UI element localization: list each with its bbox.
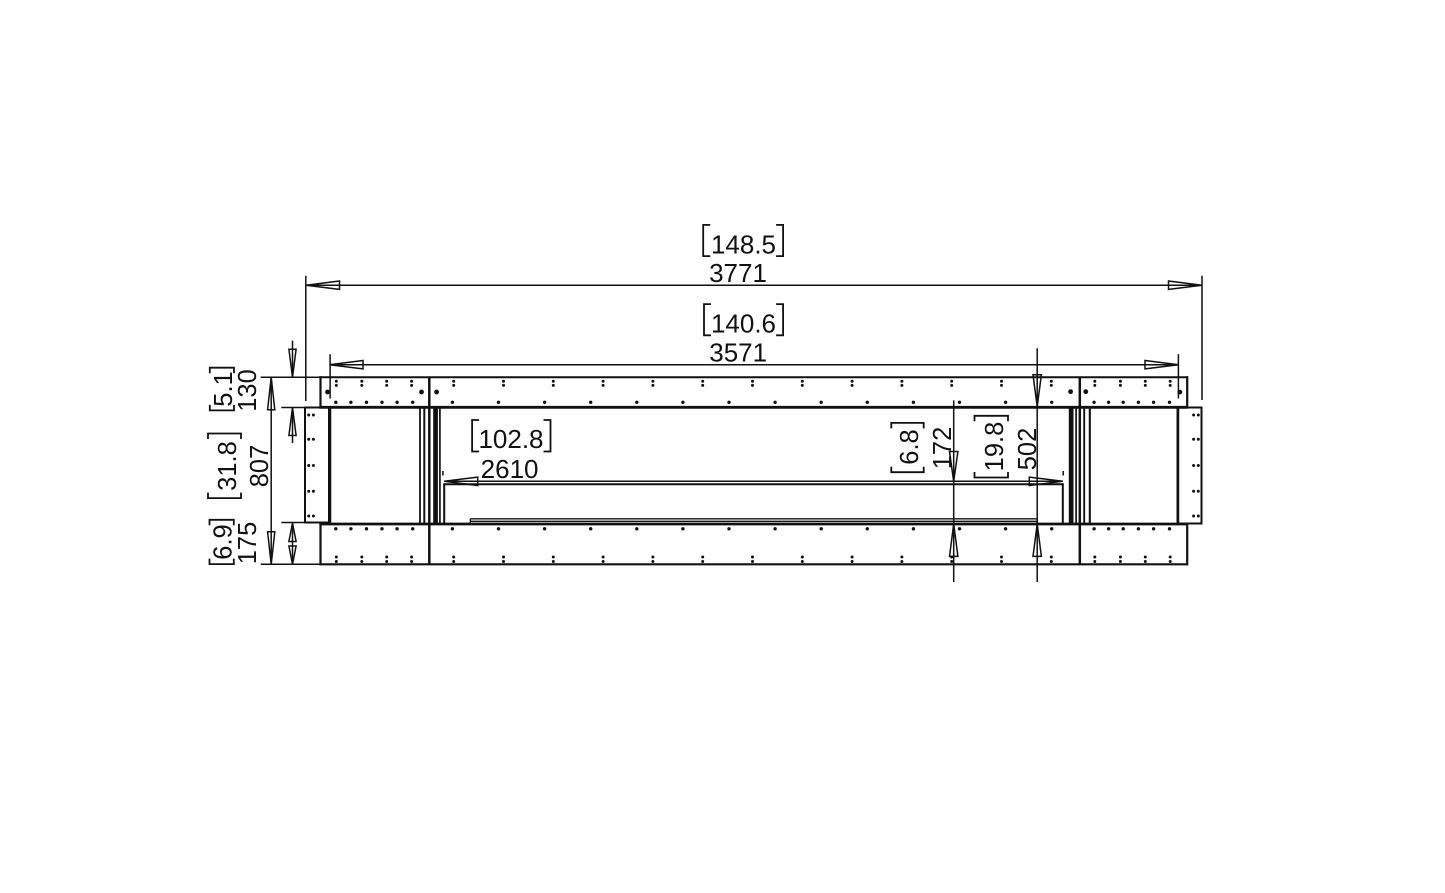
- svg-text:807: 807: [246, 445, 274, 488]
- svg-text:31.8: 31.8: [214, 441, 242, 491]
- svg-text:172: 172: [929, 427, 957, 470]
- svg-text:102.8: 102.8: [478, 424, 543, 454]
- svg-text:148.5: 148.5: [711, 229, 776, 259]
- svg-text:502: 502: [1014, 428, 1042, 471]
- svg-text:2610: 2610: [481, 454, 539, 484]
- svg-text:175: 175: [234, 522, 262, 565]
- svg-text:3571: 3571: [709, 337, 767, 367]
- svg-text:6.8: 6.8: [896, 429, 924, 464]
- svg-text:3771: 3771: [709, 258, 767, 288]
- svg-text:140.6: 140.6: [711, 309, 776, 339]
- svg-text:19.8: 19.8: [981, 422, 1009, 472]
- svg-text:130: 130: [234, 369, 262, 412]
